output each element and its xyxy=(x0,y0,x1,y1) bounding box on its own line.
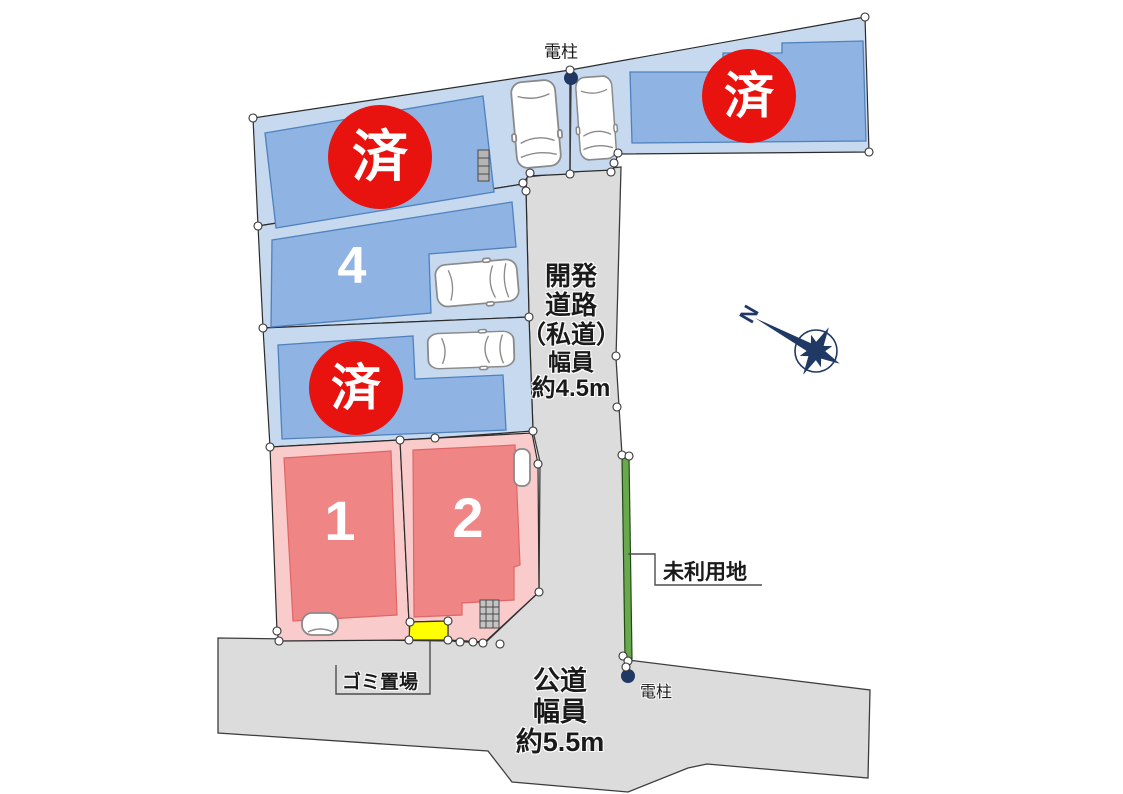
public-road-label: 公道 幅員 約5.5m xyxy=(516,666,605,758)
grid-structure-icon xyxy=(480,600,499,628)
utility-pole-icon xyxy=(621,669,635,683)
sold-badge: 済 xyxy=(702,49,796,143)
garbage-spot-marker xyxy=(409,621,448,640)
car-icon xyxy=(573,75,620,160)
sold-badge: 済 xyxy=(309,341,403,435)
lot-number-4: 4 xyxy=(338,240,367,292)
garbage-area-label: ゴミ置場 xyxy=(342,667,418,694)
sold-badge: 済 xyxy=(328,105,432,209)
compass-icon: N xyxy=(734,301,840,375)
utility-pole-label-bottom: 電柱 xyxy=(640,678,672,702)
lot-number-1: 1 xyxy=(324,493,355,549)
private-road-label: 開発 道路 （私道） 幅員 約4.5m xyxy=(521,262,621,402)
car-icon xyxy=(507,79,564,169)
steps-icon xyxy=(478,150,489,181)
car-icon xyxy=(514,449,530,486)
site-plan-canvas: N 済 済 済 4 1 2 xyxy=(0,0,1123,794)
unused-land-label: 未利用地 xyxy=(663,556,747,586)
utility-pole-line xyxy=(570,84,571,172)
utility-pole-label-top: 電柱 xyxy=(544,38,578,63)
car-icon xyxy=(434,256,520,310)
lot-number-2: 2 xyxy=(452,490,483,546)
car-icon xyxy=(302,613,338,635)
car-icon xyxy=(427,329,514,372)
compass-north-label: N xyxy=(734,301,764,327)
